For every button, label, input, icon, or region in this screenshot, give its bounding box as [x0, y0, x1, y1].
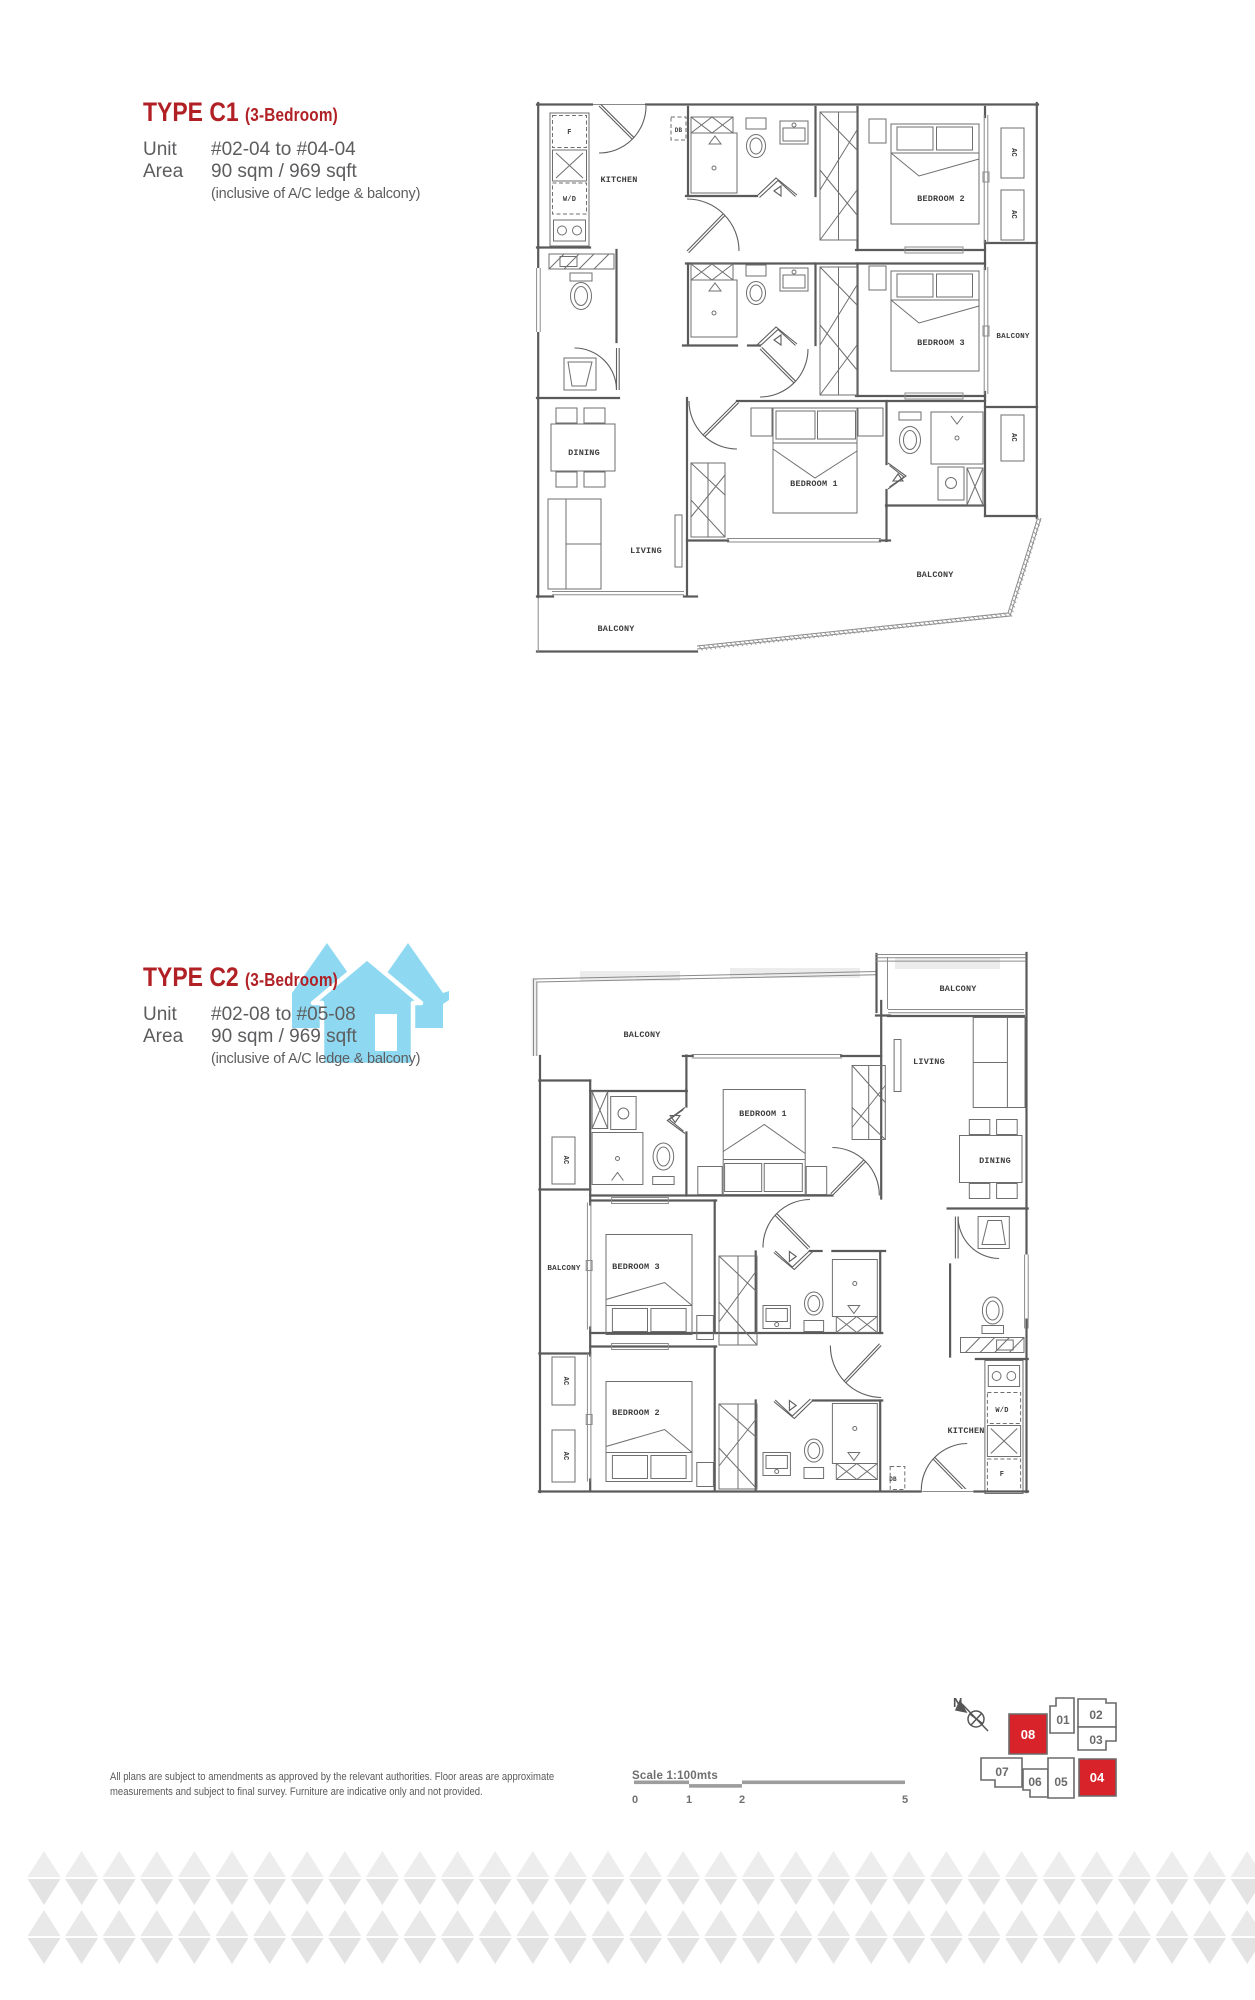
svg-text:F: F: [567, 129, 571, 137]
svg-text:BEDROOM 3: BEDROOM 3: [917, 338, 965, 348]
svg-text:BALCONY: BALCONY: [939, 984, 977, 994]
svg-text:AC: AC: [561, 1377, 569, 1386]
svg-text:BALCONY: BALCONY: [597, 624, 635, 634]
svg-text:KITCHEN: KITCHEN: [600, 175, 637, 185]
svg-text:02: 02: [1089, 1708, 1103, 1722]
svg-text:5: 5: [902, 1794, 908, 1806]
svg-text:06: 06: [1028, 1775, 1042, 1789]
svg-text:DINING: DINING: [568, 448, 600, 458]
svg-text:07: 07: [995, 1765, 1009, 1779]
svg-text:BALCONY: BALCONY: [547, 1265, 581, 1273]
svg-text:BEDROOM 1: BEDROOM 1: [790, 479, 838, 489]
svg-text:BEDROOM 2: BEDROOM 2: [612, 1408, 660, 1418]
svg-text:BEDROOM 2: BEDROOM 2: [917, 194, 965, 204]
svg-text:AC: AC: [561, 1452, 569, 1461]
svg-text:BALCONY: BALCONY: [623, 1030, 661, 1040]
svg-text:05: 05: [1054, 1775, 1068, 1789]
svg-text:AC: AC: [561, 1156, 569, 1165]
svg-text:AC: AC: [1009, 210, 1017, 219]
svg-text:04: 04: [1090, 1770, 1105, 1785]
svg-text:Scale 1:100mts: Scale 1:100mts: [632, 1770, 718, 1782]
svg-text:DB: DB: [889, 1476, 897, 1483]
svg-text:BEDROOM 3: BEDROOM 3: [612, 1262, 660, 1272]
svg-text:0: 0: [632, 1794, 638, 1806]
svg-text:2: 2: [739, 1794, 745, 1806]
svg-text:LIVING: LIVING: [630, 546, 662, 556]
svg-text:AC: AC: [1009, 148, 1017, 157]
svg-text:1: 1: [686, 1794, 692, 1806]
svg-text:BEDROOM 1: BEDROOM 1: [739, 1109, 787, 1119]
svg-text:AC: AC: [1009, 433, 1017, 442]
svg-text:F: F: [1000, 1471, 1004, 1479]
svg-text:LIVING: LIVING: [913, 1057, 945, 1067]
svg-text:W/D: W/D: [995, 1407, 1008, 1415]
svg-text:03: 03: [1089, 1733, 1103, 1747]
svg-text:BALCONY: BALCONY: [996, 333, 1030, 341]
svg-text:08: 08: [1021, 1727, 1035, 1742]
svg-text:01: 01: [1056, 1713, 1070, 1727]
svg-text:DB: DB: [675, 127, 683, 134]
svg-text:DINING: DINING: [979, 1156, 1011, 1166]
svg-text:KITCHEN: KITCHEN: [947, 1426, 984, 1436]
svg-text:W/D: W/D: [563, 196, 576, 204]
svg-text:BALCONY: BALCONY: [916, 570, 954, 580]
